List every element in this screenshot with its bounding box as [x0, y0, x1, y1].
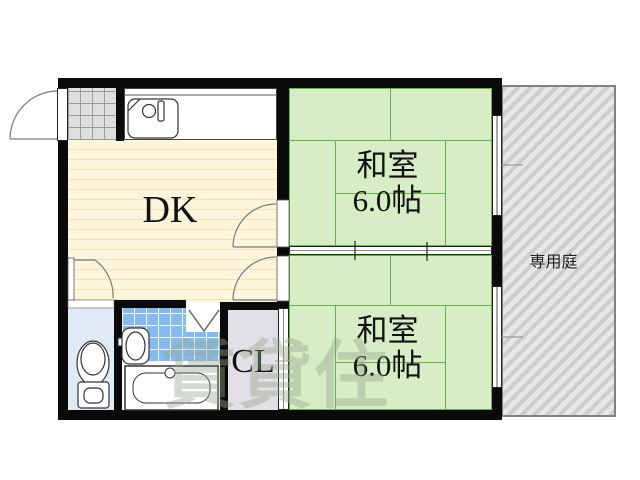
entrance-genkan-tiles: [68, 88, 116, 140]
wall: [277, 88, 289, 200]
room-size: 6.0帖: [320, 183, 455, 218]
room-name: 和室: [320, 148, 455, 183]
kitchen-counter: [124, 88, 277, 140]
sliding-door-fusuma: [289, 246, 492, 255]
wall: [58, 78, 502, 88]
wall: [114, 300, 122, 410]
window: [492, 115, 502, 216]
wall: [492, 388, 502, 410]
washitsu-upper-label: 和室 6.0帖: [320, 148, 455, 218]
toilet-room: [68, 308, 114, 410]
window: [492, 286, 502, 388]
tatami-grid-line: [289, 140, 492, 141]
tatami-grid-line: [390, 255, 391, 305]
watermark-text: 賃貸住: [162, 316, 390, 423]
wall: [58, 141, 68, 420]
garden-label: 専用庭: [501, 254, 606, 272]
wall: [112, 300, 186, 308]
floor-plan: DK 和室 6.0帖 和室 6.0帖 CL 専用庭 賃貸住: [0, 0, 640, 480]
wall: [277, 247, 289, 256]
wall: [492, 88, 502, 115]
tatami-grid-line: [289, 305, 492, 306]
tatami-grid-line: [390, 88, 391, 140]
private-garden-area: [501, 85, 616, 417]
wall: [492, 216, 502, 286]
entrance-door: [10, 91, 57, 139]
entrance-door-frame: [57, 88, 68, 141]
dk-room-label: DK: [130, 190, 210, 230]
wall: [116, 88, 124, 141]
